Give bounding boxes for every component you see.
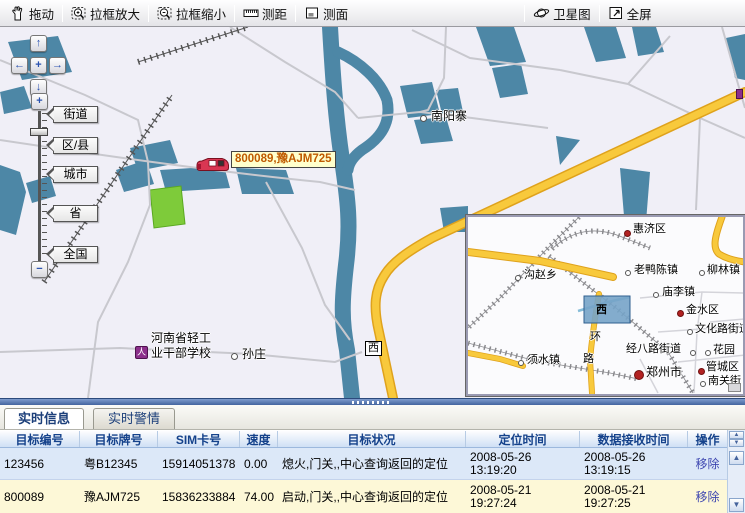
recv-date: 2008-05-21: [584, 484, 645, 497]
measure-distance-button[interactable]: 测距: [238, 2, 292, 24]
circle-marker: [518, 360, 524, 366]
red-dot-marker: [624, 230, 631, 237]
ruler-icon: [243, 5, 259, 21]
cell-status: 熄火,门关,,中心查询返回的定位: [278, 448, 466, 479]
fullscreen-button[interactable]: 全屏: [603, 2, 657, 24]
cell-speed: 0.00: [240, 448, 278, 479]
gps-monitor-window: 拖动 拉框放大 拉框缩小 测距 测面 卫星图 全屏: [0, 0, 745, 513]
table-row[interactable]: 800089 豫AJM725 15836233884 74.00 启动,门关,,…: [0, 480, 727, 513]
inset-place-label: 沟赵乡: [524, 269, 557, 282]
water-areas: [0, 27, 745, 235]
town-label: 南阳寨: [431, 109, 467, 123]
circle-marker: [690, 350, 696, 356]
zoom-in-box-button[interactable]: 拉框放大: [66, 2, 145, 24]
circle-marker: [625, 270, 631, 276]
remove-link[interactable]: 移除: [695, 488, 719, 505]
zoom-level-city[interactable]: 城市: [53, 166, 98, 183]
cell-action: 移除: [688, 480, 727, 513]
satellite-icon: [533, 5, 550, 21]
inset-place-label: 庙李镇: [662, 286, 695, 299]
cell-sim: 15914051378: [158, 448, 240, 479]
circle-marker: [700, 381, 706, 387]
loc-time: 13:19:20: [470, 464, 517, 477]
grid-scrollbar[interactable]: ▲ ▼ ▲ ▼: [727, 430, 745, 513]
measure-area-label: 测面: [323, 4, 348, 23]
zoom-out-button[interactable]: −: [31, 261, 48, 278]
circle-marker: [653, 292, 659, 298]
tab-realtime-alarm[interactable]: 实时警情: [93, 408, 175, 429]
cell-loc-time: 2008-05-26 13:19:20: [466, 448, 580, 479]
town-marker: [420, 115, 427, 122]
fullscreen-label: 全屏: [627, 4, 652, 23]
inset-roadname-char2: 路: [583, 353, 594, 366]
inset-resize-grip[interactable]: [728, 383, 741, 392]
bottom-tabbar: 实时信息 实时警情: [0, 405, 745, 430]
zoom-out-box-icon: [157, 5, 173, 21]
measure-area-button[interactable]: 测面: [299, 2, 353, 24]
green-area: [150, 186, 185, 228]
inset-view-rectangle[interactable]: [584, 296, 630, 323]
pan-right-button[interactable]: →: [49, 57, 66, 74]
cell-target-id: 123456: [0, 448, 80, 479]
red-dot-marker: [677, 310, 684, 317]
village-marker: [231, 353, 238, 360]
pan-center-button[interactable]: +: [30, 57, 47, 74]
zoom-level-nation[interactable]: 全国: [53, 246, 98, 263]
remove-link[interactable]: 移除: [695, 455, 719, 472]
cell-recv-time: 2008-05-26 13:19:15: [580, 448, 688, 479]
grid-header-row: 目标编号 目标牌号 SIM卡号 速度 目标状况 定位时间 数据接收时间 操作: [0, 430, 727, 448]
zoom-in-box-icon: [71, 5, 87, 21]
zoom-out-box-button[interactable]: 拉框缩小: [152, 2, 231, 24]
cell-action: 移除: [688, 448, 727, 479]
inset-roadname-char1: 环: [590, 331, 601, 344]
recv-time: 19:27:25: [584, 497, 631, 510]
map-viewport[interactable]: 南阳寨 孙庄 人 河南省轻工 业干部学校 西 800089,豫AJM725 ↑ …: [0, 27, 745, 398]
col-header-speed[interactable]: 速度: [240, 431, 278, 447]
pan-up-button[interactable]: ↑: [30, 35, 47, 52]
zoom-level-street[interactable]: 街道: [53, 106, 98, 123]
school-label: 河南省轻工 业干部学校: [151, 331, 211, 361]
recv-time: 13:19:15: [584, 464, 631, 477]
circle-marker: [687, 329, 693, 335]
school-label-line1: 河南省轻工: [151, 331, 211, 346]
school-icon: 人: [135, 346, 148, 359]
toolbar-separator: [524, 5, 525, 22]
cell-target-id: 800089: [0, 480, 80, 513]
scroll-down-icon[interactable]: ▼: [729, 498, 744, 512]
col-header-loc-time[interactable]: 定位时间: [466, 431, 580, 447]
vehicle-label[interactable]: 800089,豫AJM725: [231, 151, 336, 168]
zoom-level-district[interactable]: 区/县: [53, 137, 98, 154]
col-header-target-id[interactable]: 目标编号: [0, 431, 80, 447]
inset-place-label: 须水镇: [527, 354, 560, 367]
inset-place-label: 老鸭陈镇: [634, 264, 678, 277]
loc-time: 19:27:24: [470, 497, 517, 510]
inset-place-label: 惠济区: [633, 223, 666, 236]
inset-place-label: 柳林镇: [707, 264, 740, 277]
zoom-slider-handle[interactable]: [30, 128, 48, 136]
splitter-grip-icon: [352, 401, 392, 404]
toolbar-separator: [295, 5, 296, 22]
panel-splitter[interactable]: [0, 398, 745, 405]
toolbar-separator: [62, 5, 63, 22]
overview-inset-map[interactable]: 西 环 路 惠济区 老鸭陈镇 柳林镇 沟赵乡 庙李镇 金水区 文化路街道 经八路…: [466, 215, 745, 396]
recv-date: 2008-05-26: [584, 451, 645, 464]
cell-sim: 15836233884: [158, 480, 240, 513]
city-dot-marker: [634, 370, 644, 380]
village-label: 孙庄: [242, 347, 266, 361]
toolbar-separator: [599, 5, 600, 22]
col-header-status[interactable]: 目标状况: [278, 431, 466, 447]
fullscreen-icon: [608, 5, 624, 21]
col-header-sim[interactable]: SIM卡号: [158, 431, 240, 447]
pan-label: 拖动: [29, 4, 54, 23]
red-dot-marker: [698, 368, 705, 375]
loc-date: 2008-05-26: [470, 451, 531, 464]
inset-place-label: 金水区: [686, 304, 719, 317]
table-row[interactable]: 123456 粤B12345 15914051378 0.00 熄火,门关,,中…: [0, 448, 727, 480]
cell-plate: 粤B12345: [80, 448, 158, 479]
school-label-line2: 业干部学校: [151, 346, 211, 361]
hand-icon: [10, 5, 26, 21]
inset-place-label: 经八路街道: [626, 343, 681, 356]
cell-status: 启动,门关,,中心查询返回的定位: [278, 480, 466, 513]
satellite-view-label: 卫星图: [553, 4, 591, 23]
scroll-up-icon[interactable]: ▲: [729, 451, 744, 465]
map-toolbar: 拖动 拉框放大 拉框缩小 测距 测面 卫星图 全屏: [0, 0, 745, 27]
pan-left-button[interactable]: ←: [11, 57, 28, 74]
road-sign-west: 西: [365, 341, 382, 356]
cell-plate: 豫AJM725: [80, 480, 158, 513]
pan-button[interactable]: 拖动: [5, 2, 59, 24]
toolbar-separator: [148, 5, 149, 22]
measure-distance-label: 测距: [262, 4, 287, 23]
scroll-mini-up-icon[interactable]: ▲: [729, 431, 744, 439]
col-header-plate[interactable]: 目标牌号: [80, 431, 158, 447]
cell-loc-time: 2008-05-21 19:27:24: [466, 480, 580, 513]
scroll-mini-down-icon[interactable]: ▼: [729, 439, 744, 447]
circle-marker: [699, 270, 705, 276]
inset-city-label: 郑州市: [646, 366, 682, 379]
circle-marker: [515, 275, 521, 281]
satellite-view-button[interactable]: 卫星图: [528, 2, 596, 24]
toolbar-separator: [234, 5, 235, 22]
tab-realtime-info[interactable]: 实时信息: [4, 408, 84, 429]
inset-place-label: 文化路街道: [695, 323, 745, 336]
zoom-in-box-label: 拉框放大: [90, 4, 140, 23]
cell-speed: 74.00: [240, 480, 278, 513]
col-header-action[interactable]: 操作: [688, 431, 727, 447]
inset-place-label: 花园: [713, 344, 735, 357]
inset-highlight-label: 西: [596, 301, 607, 317]
cell-recv-time: 2008-05-21 19:27:25: [580, 480, 688, 513]
inset-place-label: 管城区: [706, 361, 739, 374]
zoom-level-province[interactable]: 省: [53, 205, 98, 222]
col-header-recv-time[interactable]: 数据接收时间: [580, 431, 688, 447]
area-icon: [304, 5, 320, 21]
car-icon[interactable]: [195, 156, 230, 178]
poi-marker: [736, 89, 743, 99]
loc-date: 2008-05-21: [470, 484, 531, 497]
circle-marker: [705, 350, 711, 356]
zoom-out-box-label: 拉框缩小: [176, 4, 226, 23]
